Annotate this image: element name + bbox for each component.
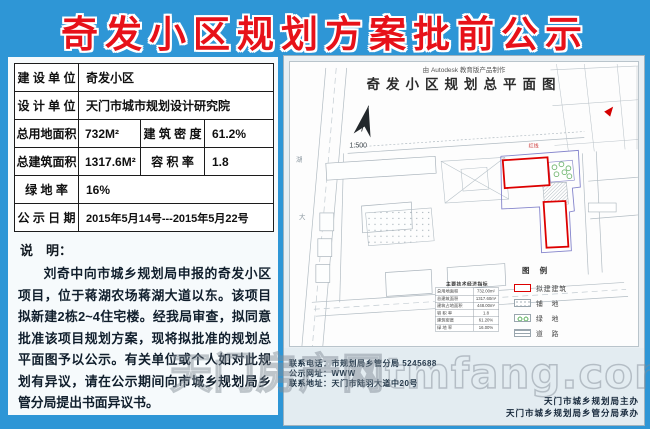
- design-unit-label: 设 计 单 位: [15, 92, 79, 119]
- contact-phone: 联系电话：市规划局乡管分局 5245688: [289, 359, 644, 369]
- indicator-name: 容 积 率: [436, 310, 474, 317]
- indicators-title: 主要技术经济指标: [435, 280, 499, 287]
- legend: 图 例 拟建建筑 铺 地 绿 地 道 路: [514, 265, 584, 340]
- scale-label: 1:500: [350, 142, 368, 149]
- contact-block: 联系电话：市规划局乡管分局 5245688 公示网址：WWW 联系地址：天门市陆…: [284, 348, 644, 425]
- page-title: 奇发小区规划方案批前公示: [0, 4, 650, 58]
- indicator-value: 1.8: [474, 310, 499, 317]
- indicator-name: 总建筑面积: [436, 295, 474, 302]
- paving-swatch: [514, 299, 531, 307]
- road-name-char-2: 大: [299, 212, 306, 221]
- indicator-value: 448.00m²: [474, 303, 499, 310]
- key-map-site-arrow: [604, 107, 613, 117]
- construction-unit-label: 建 设 单 位: [15, 64, 79, 91]
- road-name-char-1: 湖: [296, 154, 302, 163]
- indicator-value: 61.20%: [474, 317, 499, 324]
- table-row: 公 示 日 期 2015年5月14号---2015年5月22号: [15, 204, 273, 231]
- table-row: 总用地面积 732M² 建 筑 密 度 61.2%: [15, 120, 273, 148]
- indicator-row: 总用地面积 732.00m²: [436, 288, 499, 295]
- legend-item: 拟建建筑: [514, 280, 584, 295]
- table-row: 设 计 单 位 天门市城市规划设计研究院: [15, 92, 273, 120]
- floor-area-label: 总建筑面积: [15, 148, 79, 175]
- legend-label: 绿 地: [536, 313, 559, 323]
- plan-title: 奇发小区规划总平面图: [290, 73, 638, 93]
- proposed-building-a: [503, 157, 550, 188]
- indicator-row: 容 积 率 1.8: [436, 310, 499, 317]
- legend-item: 绿 地: [514, 310, 584, 325]
- green-space-swatch: [514, 314, 531, 322]
- proposed-building-swatch: [514, 284, 531, 292]
- floor-area-value: 1317.6M²: [79, 148, 141, 175]
- notice-date-label: 公 示 日 期: [15, 204, 79, 231]
- plot-ratio-label: 容 积 率: [141, 148, 205, 175]
- indicator-name: 总用地面积: [436, 288, 474, 295]
- note-heading: 说 明：: [20, 240, 72, 259]
- land-area-label: 总用地面积: [15, 120, 79, 147]
- indicator-value: 16.00%: [474, 324, 499, 331]
- indicator-name: 建筑占地面积: [436, 303, 474, 310]
- contact-website: 公示网址：WWW: [289, 369, 644, 379]
- courtyard-garden: [441, 157, 509, 203]
- indicator-name: 建筑密度: [436, 317, 474, 324]
- construction-unit-value: 奇发小区: [79, 64, 273, 91]
- map-label-box: [588, 203, 616, 212]
- table-row: 建 设 单 位 奇发小区: [15, 64, 273, 92]
- plan-sheet: 由 Autodesk 教育版产品制作 奇发小区规划总平面图: [289, 61, 639, 347]
- contact-address: 联系地址：天门市陆羽大道中20号: [289, 379, 644, 389]
- design-unit-value: 天门市城市规划设计研究院: [79, 92, 273, 119]
- notice-board: 奇发小区规划方案批前公示 建 设 单 位 奇发小区 设 计 单 位 天门市城市规…: [0, 0, 650, 429]
- indicator-row: 总建筑面积 1317.60m²: [436, 295, 499, 302]
- redline-label: 红线: [529, 142, 539, 149]
- footer-credits: 天门市城乡规划局主办 天门市城乡规划局乡管分局承办: [506, 396, 639, 419]
- green-space: [549, 160, 575, 182]
- density-label: 建 筑 密 度: [141, 120, 205, 147]
- legend-label: 拟建建筑: [536, 283, 567, 293]
- indicator-value: 1317.60m²: [474, 295, 499, 302]
- legend-label: 铺 地: [536, 298, 559, 308]
- road-swatch: [514, 329, 531, 337]
- organizer-line: 天门市城乡规划局乡管分局承办: [506, 408, 639, 420]
- note-paragraph: 刘奇中向市城乡规划局申报的奇发小区项目，位于蒋湖农场蒋湖大道以东。该项目拟新建2…: [18, 263, 271, 414]
- indicators-table: 主要技术经济指标 总用地面积 732.00m² 总建筑面积 1317.60m² …: [435, 280, 499, 338]
- table-row: 绿 地 率 16%: [15, 176, 273, 204]
- proposed-building-b: [544, 201, 569, 248]
- host-line: 天门市城乡规划局主办: [506, 396, 639, 408]
- plot-ratio-value: 1.8: [205, 148, 273, 175]
- notice-date-value: 2015年5月14号---2015年5月22号: [79, 204, 273, 231]
- indicator-value: 732.00m²: [474, 288, 499, 295]
- legend-label: 道 路: [536, 328, 559, 338]
- indicator-name: 绿 地 率: [436, 324, 474, 331]
- green-rate-value: 16%: [79, 176, 273, 203]
- plan-panel: 由 Autodesk 教育版产品制作 奇发小区规划总平面图: [283, 55, 645, 426]
- indicator-row: 建筑占地面积 448.00m²: [436, 303, 499, 310]
- north-arrow-icon: [354, 106, 371, 138]
- indicator-row: 建筑密度 61.20%: [436, 317, 499, 324]
- legend-item: 铺 地: [514, 295, 584, 310]
- land-area-value: 732M²: [79, 120, 141, 147]
- green-rate-label: 绿 地 率: [15, 176, 79, 203]
- table-row: 总建筑面积 1317.6M² 容 积 率 1.8: [15, 148, 273, 176]
- density-value: 61.2%: [205, 120, 273, 147]
- legend-item: 道 路: [514, 325, 584, 340]
- paved-plaza: [366, 208, 435, 246]
- info-table: 建 设 单 位 奇发小区 设 计 单 位 天门市城市规划设计研究院 总用地面积 …: [14, 63, 274, 232]
- info-panel: 建 设 单 位 奇发小区 设 计 单 位 天门市城市规划设计研究院 总用地面积 …: [8, 57, 278, 415]
- indicator-row: 绿 地 率 16.00%: [436, 324, 499, 331]
- legend-title: 图 例: [522, 265, 584, 276]
